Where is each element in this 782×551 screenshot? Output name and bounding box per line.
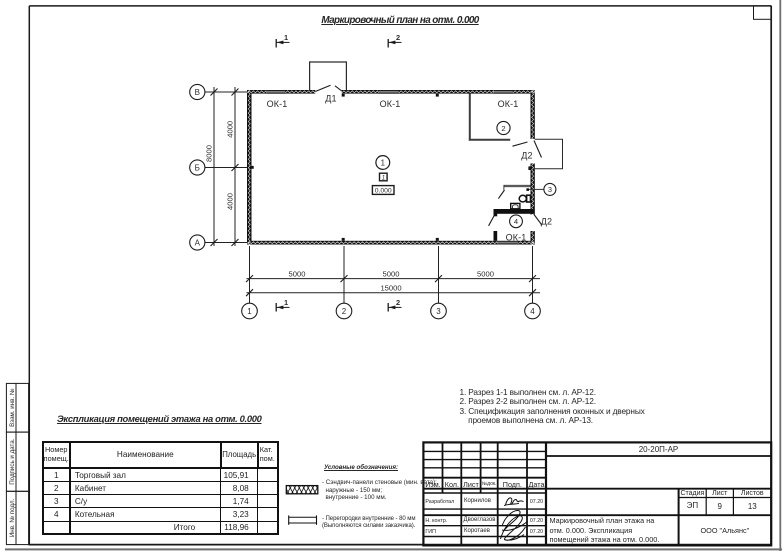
svg-text:2: 2 xyxy=(396,33,400,42)
svg-text:3: 3 xyxy=(548,185,552,194)
svg-text:4000: 4000 xyxy=(226,193,235,210)
svg-text:ОК-1: ОК-1 xyxy=(380,99,401,109)
svg-text:5000: 5000 xyxy=(477,270,494,279)
svg-text:А: А xyxy=(195,239,201,248)
svg-text:5000: 5000 xyxy=(383,270,400,279)
svg-text:2: 2 xyxy=(501,124,505,133)
svg-text:1: 1 xyxy=(247,307,252,316)
svg-text:ОК-1: ОК-1 xyxy=(498,99,519,109)
svg-text:2: 2 xyxy=(342,307,347,316)
svg-text:ОК-1: ОК-1 xyxy=(506,232,527,242)
svg-text:3: 3 xyxy=(436,307,441,316)
svg-text:1: 1 xyxy=(284,298,288,307)
svg-text:0.000: 0.000 xyxy=(375,188,392,195)
svg-text:5000: 5000 xyxy=(289,270,306,279)
svg-text:15000: 15000 xyxy=(380,284,401,293)
svg-text:Б: Б xyxy=(195,164,200,173)
svg-text:Взам. инв. №: Взам. инв. № xyxy=(9,388,16,427)
svg-text:Инв. № подл.: Инв. № подл. xyxy=(9,498,16,537)
svg-text:4: 4 xyxy=(530,307,535,316)
svg-text:4: 4 xyxy=(514,217,518,226)
svg-text:Подпись и дата.: Подпись и дата. xyxy=(9,438,16,485)
svg-text:2: 2 xyxy=(396,298,400,307)
svg-text:1: 1 xyxy=(382,175,385,181)
svg-text:1: 1 xyxy=(381,158,385,167)
svg-text:В: В xyxy=(195,88,200,97)
svg-text:4000: 4000 xyxy=(226,121,235,138)
svg-text:1: 1 xyxy=(284,33,288,42)
svg-text:8000: 8000 xyxy=(205,145,214,162)
svg-text:Д2: Д2 xyxy=(541,216,552,226)
svg-text:Д2: Д2 xyxy=(521,150,532,160)
svg-text:Д1: Д1 xyxy=(325,93,336,103)
svg-text:ОК-1: ОК-1 xyxy=(267,99,288,109)
